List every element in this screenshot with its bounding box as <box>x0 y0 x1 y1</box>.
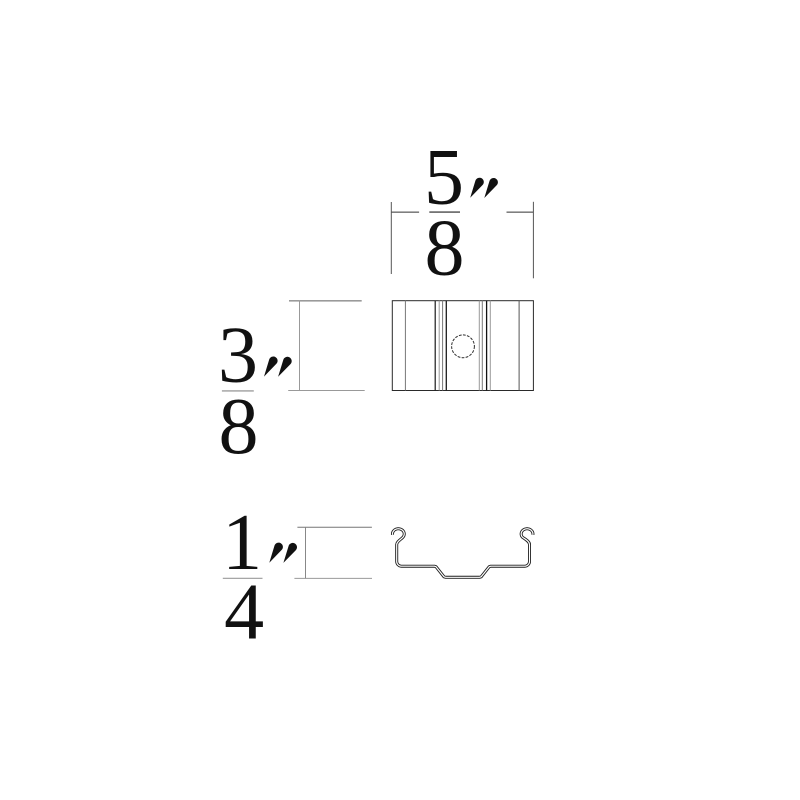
svg-text:4: 4 <box>224 568 264 656</box>
svg-text:8: 8 <box>219 383 259 471</box>
svg-text:8: 8 <box>425 205 465 293</box>
